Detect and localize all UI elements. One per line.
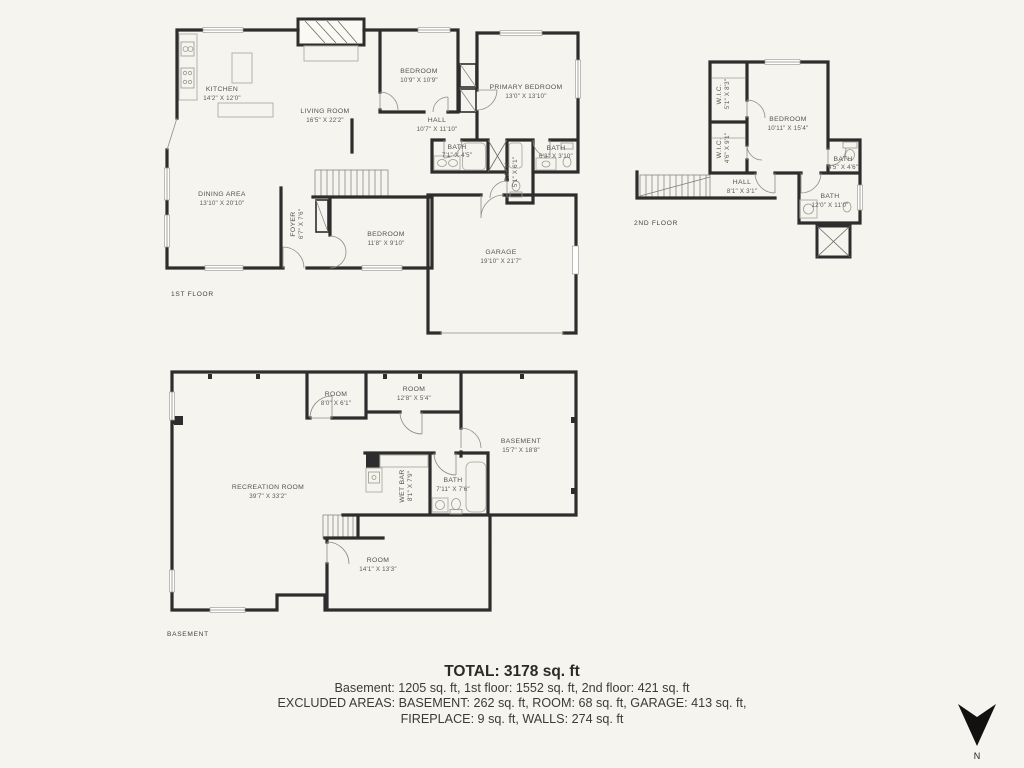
chimney [817, 226, 850, 257]
floor-label-basement: BASEMENT [167, 631, 209, 638]
room-label: W.I.C. [716, 84, 723, 105]
room-label: LIVING ROOM [300, 108, 349, 115]
room-label: FOYER [290, 211, 297, 236]
room-dims: 10'9" X 10'9" [400, 77, 438, 84]
room-label: KITCHEN [206, 86, 238, 93]
room-dims: 12'0" X 11'0" [811, 202, 848, 209]
room-dims: 10'11" X 15'4" [768, 125, 809, 132]
windows-second-floor [765, 60, 863, 211]
room-dims: 8'0" X 6'1" [321, 400, 351, 407]
room-dims: 4'6" X 9'1" [724, 133, 731, 163]
floor-label-second: 2ND FLOOR [634, 220, 678, 227]
room-dims: 4'5" X 4'6" [828, 164, 858, 171]
total-area-text: TOTAL: 3178 sq. ft [0, 664, 1024, 679]
room-dims: 14'1" X 13'3" [359, 566, 397, 573]
room-dims: 10'7" X 11'10" [417, 126, 458, 133]
room-label: ROOM [403, 386, 426, 393]
windows-basement [170, 392, 246, 613]
room-label: BASEMENT [501, 438, 541, 445]
room-label: BATH [546, 145, 565, 152]
room-label: HALL [733, 179, 751, 186]
room-label: ROOM [367, 557, 390, 564]
wall-anchors [172, 374, 576, 494]
room-label: DINING AREA [198, 191, 246, 198]
area-summary: TOTAL: 3178 sq. ft Basement: 1205 sq. ft… [0, 664, 1024, 727]
room-dims: 6'3" X 3'10" [539, 153, 573, 160]
room-label: BEDROOM [367, 231, 405, 238]
room-dims: 13'10" X 20'10" [200, 200, 245, 207]
room-dims: 16'5" X 22'2" [306, 117, 344, 124]
second-floor-plan: W.I.C. 5'1" X 8'3" W.I.C. 4'6" X 9'1" BE… [634, 60, 863, 258]
room-label: BATH [833, 156, 852, 163]
room-dims: 13'0" X 13'10" [505, 93, 546, 100]
room-label: BEDROOM [400, 68, 438, 75]
room-dims: 8'1" X 7'9" [407, 471, 414, 501]
room-dims: 8'1" X 3'1" [727, 188, 757, 195]
doors-second-floor [747, 100, 846, 193]
room-label: BATH [504, 162, 511, 181]
room-dims: 15'7" X 18'8" [502, 447, 540, 454]
room-dims: 6'7" X 7'6" [298, 209, 305, 239]
stairs-second-floor [640, 175, 710, 198]
room-label: BATH [820, 193, 839, 200]
room-dims: 5'1" X 6'1" [512, 157, 519, 187]
room-label: GARAGE [485, 249, 516, 256]
north-label: N [974, 751, 981, 761]
stairs-first-floor [315, 170, 388, 197]
room-label: BEDROOM [769, 116, 807, 123]
room-label: PRIMARY BEDROOM [490, 84, 563, 91]
room-dims: 19'10" X 21'7" [480, 258, 521, 265]
excluded-areas-text-continued: FIREPLACE: 9 sq. ft, WALLS: 274 sq. ft [0, 712, 1024, 727]
stairs-basement [323, 515, 358, 538]
room-dims: 12'8" X 5'4" [397, 395, 431, 402]
room-dims: 14'2" X 12'0" [203, 95, 241, 102]
excluded-areas-text: EXCLUDED AREAS: BASEMENT: 262 sq. ft, RO… [0, 696, 1024, 711]
wet-bar-fixtures [366, 454, 428, 492]
room-label: HALL [428, 117, 446, 124]
room-label: WET BAR [399, 469, 406, 502]
room-label: W.I.C. [716, 138, 723, 159]
room-dims: 39'7" X 33'2" [249, 493, 287, 500]
floor-areas-text: Basement: 1205 sq. ft, 1st floor: 1552 s… [0, 681, 1024, 696]
fireplace [298, 19, 364, 61]
room-dims: 5'1" X 8'3" [724, 79, 731, 109]
basement-plan: ROOM 8'0" X 6'1" ROOM 12'8" X 5'4" RECRE… [167, 372, 576, 638]
room-label: ROOM [325, 391, 348, 398]
floor-plan-page: KITCHEN 14'2" X 12'0" LIVING ROOM 16'5" … [0, 0, 1024, 768]
room-dims: 7'1" X 4'5" [442, 152, 472, 159]
basement-walls [172, 372, 576, 610]
floor-label-first: 1ST FLOOR [171, 291, 214, 298]
kitchen-fixtures [179, 34, 273, 117]
room-dims: 11'8" X 9'10" [367, 240, 404, 247]
room-label: BATH [447, 144, 466, 151]
first-floor-plan: KITCHEN 14'2" X 12'0" LIVING ROOM 16'5" … [165, 19, 581, 333]
room-label: BATH [443, 477, 462, 484]
floor-plan-drawing: KITCHEN 14'2" X 12'0" LIVING ROOM 16'5" … [0, 0, 1024, 768]
room-label: RECREATION ROOM [232, 484, 304, 491]
room-dims: 7'11" X 7'6" [436, 486, 469, 493]
